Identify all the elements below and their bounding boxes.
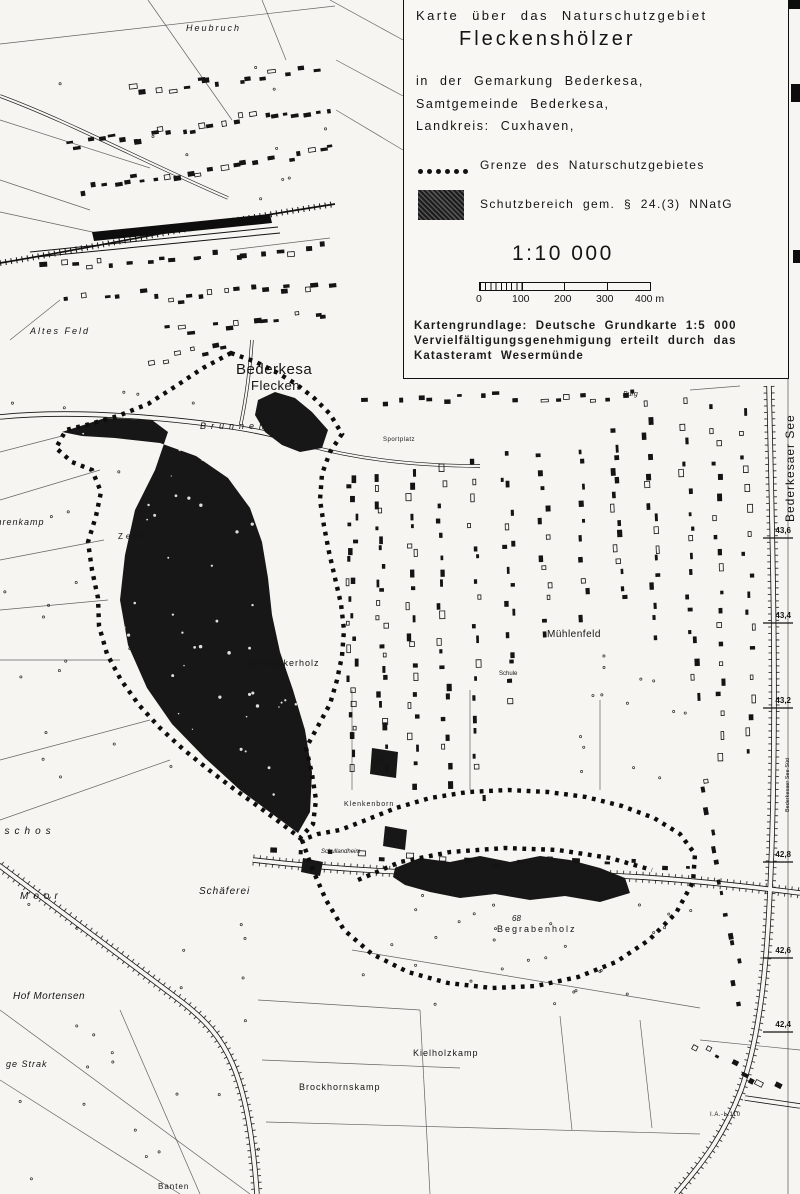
map-label-flecken: Flecken (251, 378, 300, 393)
map-label-sportplatz: Sportplatz (383, 437, 415, 443)
elevation-label: 42,8 (775, 850, 791, 859)
map-label-68: 68 (512, 914, 521, 923)
map-label-brockhornskamp: Brockhornskamp (299, 1082, 381, 1092)
attribution-line-3: Katasteramt Wesermünde (414, 349, 737, 364)
elevation-label: 42,6 (775, 946, 791, 955)
map-label-zech: Zech (118, 532, 148, 541)
attribution: Kartengrundlage: Deutsche Grundkarte 1:5… (414, 319, 737, 364)
protected-area-symbol-swatch (418, 190, 464, 220)
map-label-altes-feld: Altes Feld (29, 326, 90, 336)
map-label-brunnen: Brunnen (200, 421, 269, 431)
scale-tick-100: 100 (512, 293, 530, 305)
legend-panel: Karte über das Naturschutzgebiet Flecken… (403, 0, 789, 379)
railway-line (0, 204, 335, 263)
map-label-bederkesa: Bederkesa (236, 361, 312, 378)
elevation-label: 43,4 (775, 611, 791, 620)
map-label-schäferei: Schäferei (199, 886, 250, 897)
elevation-label: 43,2 (775, 696, 791, 705)
map-title: Fleckenshölzer (459, 28, 636, 51)
scale-tick-200: 200 (554, 293, 572, 305)
map-label-begrabenholz: Begrabenholz (497, 924, 577, 934)
scale-tick-300: 300 (596, 293, 614, 305)
boundary-symbol-dots (418, 161, 472, 179)
map-subtitle: in der Gemarkung Bederkesa, Samtgemeinde… (416, 70, 644, 138)
legend-entry-boundary: Grenze des Naturschutzgebietes (480, 158, 705, 172)
attribution-line-2: Vervielfältigungsgenehmigung erteilt dur… (414, 334, 737, 349)
map-label-hof-mortensen: Hof Mortensen (13, 991, 85, 1002)
map-label-kielholzkamp: Kielholzkamp (413, 1048, 479, 1058)
map-label-heubruch: Heubruch (186, 23, 241, 33)
scale-tick-400: 400 m (635, 293, 664, 305)
map-sheet: 43,643,443,242,842,642,4 HeubruchBederke… (0, 0, 800, 1194)
map-label-schule: Schule (499, 671, 518, 677)
map-label-klenkenborn: Klenkenborn (344, 801, 394, 808)
scale-ratio: 1:10 000 (512, 242, 614, 266)
schutzbereich-begrabenholz (393, 856, 630, 902)
map-label-ge-strak: ge Strak (6, 1059, 48, 1069)
map-label-burg: Burg (623, 391, 638, 398)
subtitle-line-3: Landkreis: Cuxhaven, (416, 115, 644, 138)
map-label-nschos: nschos (0, 826, 56, 837)
map-label-ihrenkamp: Ihrenkamp (0, 517, 45, 527)
map-label-banten: Banten (158, 1182, 189, 1191)
map-label-moor: Moor (20, 891, 63, 902)
attribution-line-1: Kartengrundlage: Deutsche Grundkarte 1:5… (414, 319, 737, 334)
elevation-label: 42,4 (775, 1020, 791, 1029)
scale-tick-0: 0 (476, 293, 482, 305)
map-label-mühlenfeld: Mühlenfeld (547, 629, 601, 640)
map-title-kicker: Karte über das Naturschutzgebiet (416, 8, 707, 23)
map-label-schullandheim: Schullandheim (321, 849, 360, 855)
map-label-bederkesaer-see: Bederkesaer See (783, 414, 797, 522)
scale-bar (479, 282, 651, 291)
legend-entry-protected-area: Schutzbereich gem. § 24.(3) NNatG (480, 197, 733, 211)
elevation-label: 43,6 (775, 526, 791, 535)
map-label-i-a-l-110: I.A.-L.110 (710, 1112, 741, 1118)
subtitle-line-2: Samtgemeinde Bederkesa, (416, 93, 644, 116)
subtitle-line-1: in der Gemarkung Bederkesa, (416, 70, 644, 93)
map-label-spitzeckerholz: Spitzeckerholz (247, 658, 320, 668)
